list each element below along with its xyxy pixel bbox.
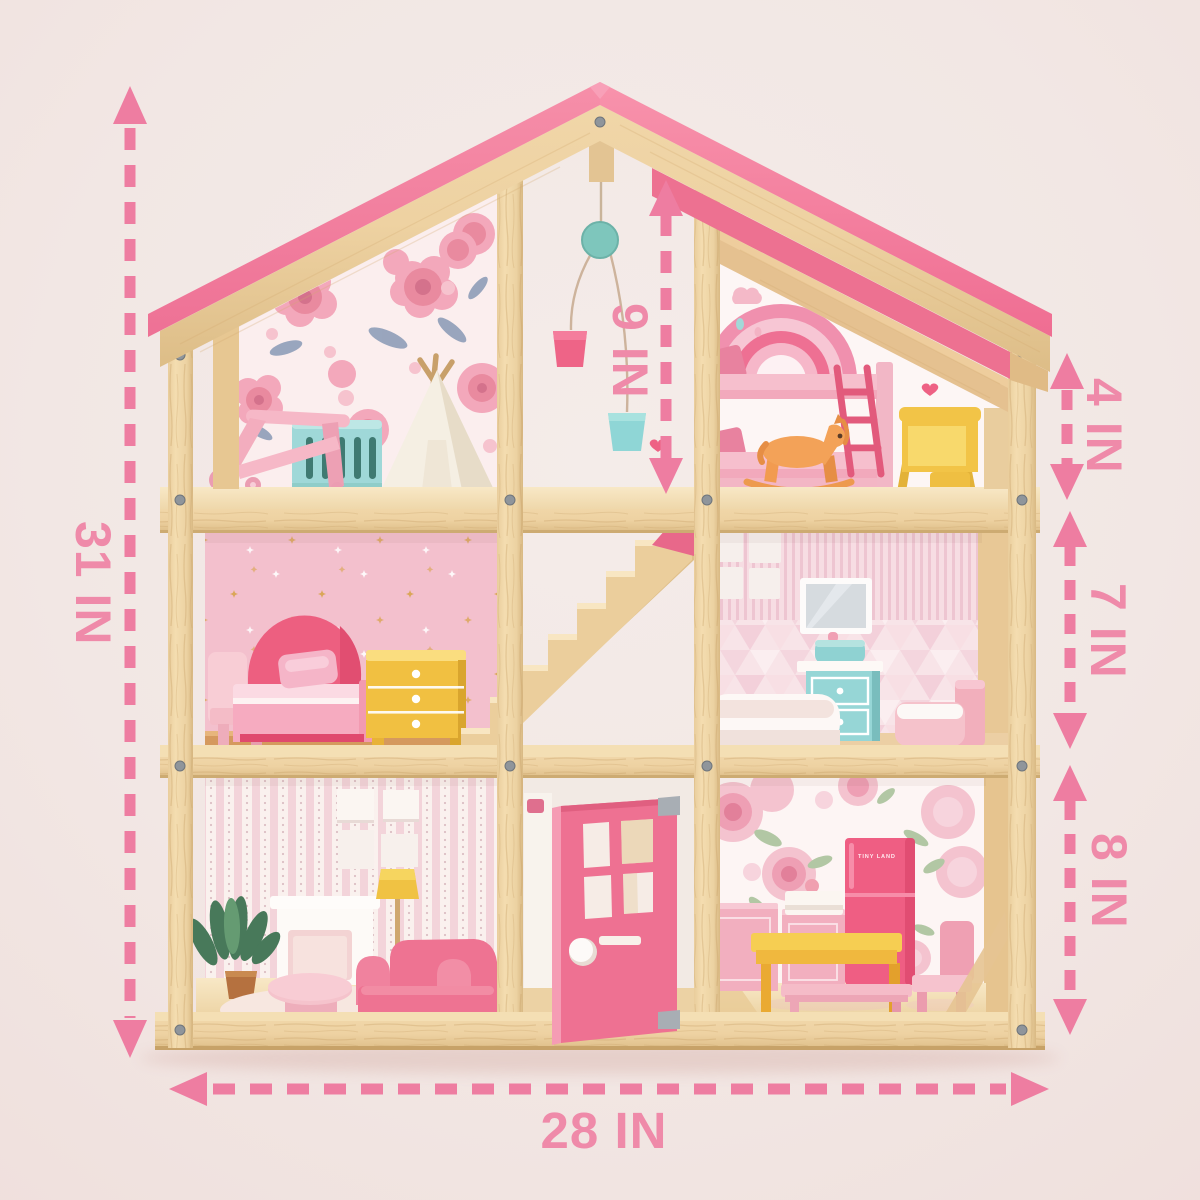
svg-text:8 IN: 8 IN <box>1081 833 1137 929</box>
svg-text:TINY LAND: TINY LAND <box>858 854 896 860</box>
svg-text:7 IN: 7 IN <box>1080 583 1136 679</box>
svg-text:4 IN: 4 IN <box>1076 378 1132 474</box>
svg-text:31 IN: 31 IN <box>65 521 121 646</box>
svg-text:28 IN: 28 IN <box>541 1102 668 1159</box>
svg-text:9 IN: 9 IN <box>602 303 658 399</box>
